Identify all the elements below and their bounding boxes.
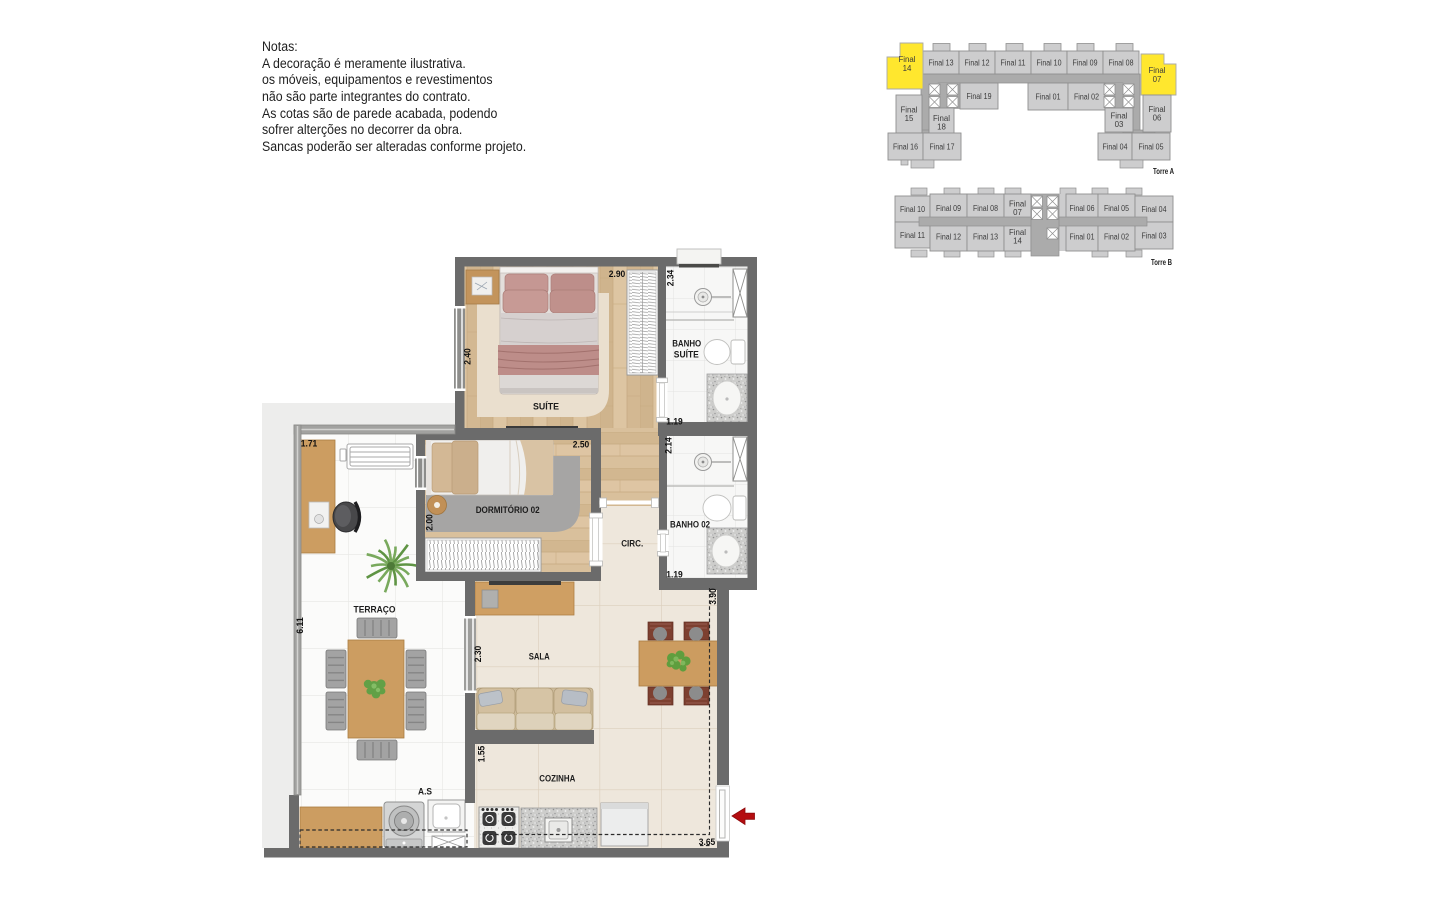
svg-text:A.S: A.S	[418, 787, 432, 797]
svg-text:Final 05: Final 05	[1139, 142, 1165, 151]
svg-text:Final 19: Final 19	[967, 92, 993, 101]
svg-text:2.40: 2.40	[463, 348, 473, 365]
svg-text:Final: Final	[1009, 199, 1026, 208]
svg-text:Final 13: Final 13	[973, 232, 999, 241]
svg-text:Final 03: Final 03	[1142, 231, 1168, 240]
svg-text:Final 08: Final 08	[973, 204, 999, 213]
svg-text:BANHO: BANHO	[672, 339, 701, 349]
svg-text:2.50: 2.50	[573, 440, 590, 450]
svg-text:Final 11: Final 11	[900, 231, 925, 240]
svg-text:3.90: 3.90	[708, 588, 718, 605]
svg-text:BANHO 02: BANHO 02	[670, 520, 710, 530]
svg-text:Final: Final	[898, 55, 915, 64]
svg-text:DORMITÓRIO 02: DORMITÓRIO 02	[476, 504, 540, 515]
svg-text:Final: Final	[933, 114, 950, 123]
svg-text:Final: Final	[901, 105, 918, 114]
svg-text:6.11: 6.11	[295, 617, 305, 634]
svg-text:COZINHA: COZINHA	[539, 774, 575, 784]
svg-text:2.00: 2.00	[425, 514, 435, 531]
svg-text:Final 09: Final 09	[1073, 58, 1099, 67]
svg-text:Final 09: Final 09	[936, 204, 962, 213]
svg-text:Final 10: Final 10	[900, 205, 926, 214]
svg-text:Torre A: Torre A	[1153, 167, 1174, 176]
svg-text:Final 04: Final 04	[1103, 142, 1129, 151]
svg-text:Final 11: Final 11	[1001, 58, 1026, 67]
svg-text:Final 12: Final 12	[965, 58, 990, 67]
svg-text:Final 10: Final 10	[1037, 58, 1063, 67]
svg-text:Final: Final	[1148, 66, 1165, 75]
svg-text:07: 07	[1153, 75, 1162, 84]
svg-text:06: 06	[1153, 114, 1162, 123]
svg-text:Final 02: Final 02	[1074, 92, 1099, 101]
svg-text:Final 13: Final 13	[929, 58, 955, 67]
svg-text:18: 18	[937, 123, 946, 132]
svg-text:TERRAÇO: TERRAÇO	[354, 605, 396, 615]
svg-text:14: 14	[1013, 237, 1022, 246]
svg-text:SALA: SALA	[529, 652, 550, 662]
svg-text:3.65: 3.65	[699, 837, 716, 847]
svg-text:1.19: 1.19	[666, 417, 683, 427]
svg-text:Final 05: Final 05	[1104, 204, 1130, 213]
svg-text:Final 06: Final 06	[1070, 204, 1096, 213]
svg-text:14: 14	[903, 64, 912, 73]
svg-text:Final: Final	[1111, 111, 1128, 120]
svg-text:2.34: 2.34	[666, 269, 676, 286]
svg-text:1.55: 1.55	[477, 746, 487, 763]
svg-text:Final 16: Final 16	[893, 142, 919, 151]
svg-text:Final 12: Final 12	[936, 232, 961, 241]
svg-text:Final 04: Final 04	[1142, 205, 1168, 214]
svg-text:Final: Final	[1009, 228, 1026, 237]
svg-text:CIRC.: CIRC.	[621, 539, 643, 549]
svg-text:Final 01: Final 01	[1036, 92, 1061, 101]
svg-text:Final 08: Final 08	[1109, 58, 1135, 67]
svg-text:SUÍTE: SUÍTE	[533, 402, 559, 412]
svg-text:SUÍTE: SUÍTE	[674, 350, 699, 360]
svg-text:2.14: 2.14	[664, 437, 674, 454]
svg-text:2.90: 2.90	[609, 269, 626, 279]
svg-text:1.19: 1.19	[666, 570, 683, 580]
svg-text:2.30: 2.30	[473, 646, 483, 663]
svg-text:Final 02: Final 02	[1104, 232, 1129, 241]
svg-text:Final 17: Final 17	[930, 142, 955, 151]
svg-text:1.71: 1.71	[301, 439, 318, 449]
svg-text:15: 15	[905, 114, 914, 123]
svg-text:Torre B: Torre B	[1151, 258, 1172, 267]
svg-text:Final: Final	[1149, 105, 1166, 114]
svg-text:07: 07	[1013, 208, 1022, 217]
svg-text:Final 01: Final 01	[1070, 232, 1095, 241]
svg-text:03: 03	[1115, 120, 1124, 129]
